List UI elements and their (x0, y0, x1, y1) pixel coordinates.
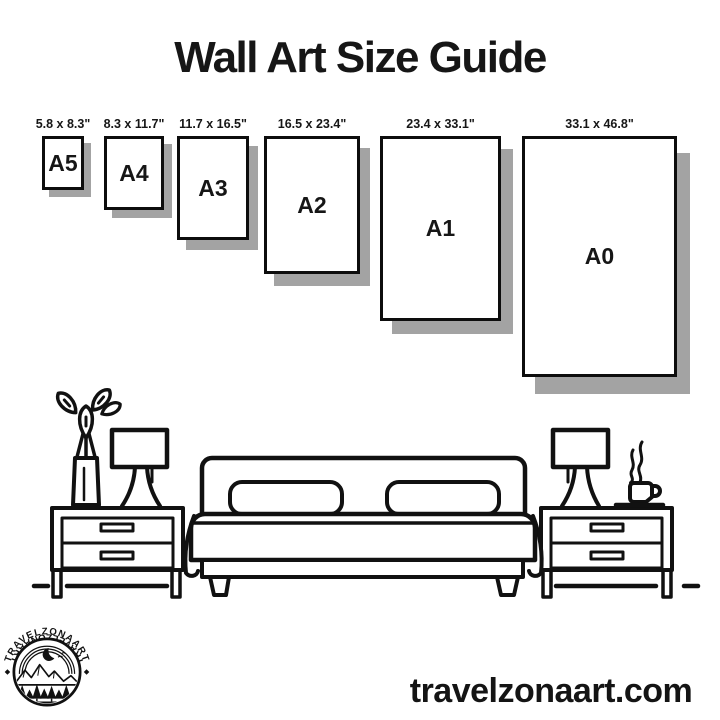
website-url: travelzonaart.com (401, 672, 701, 711)
table-lamp-left-icon (112, 430, 167, 506)
bedroom-illustration (0, 0, 720, 720)
bed-icon (185, 458, 541, 595)
steam (639, 442, 642, 482)
table-lamp-right-icon (553, 430, 608, 506)
steam (631, 450, 633, 481)
bed-leg-left (210, 577, 229, 595)
wall-art-size-guide-poster: Wall Art Size Guide 5.8 x 8.3" A5 8.3 x … (0, 0, 720, 720)
diamond-separator (5, 669, 11, 675)
pillow-right (387, 482, 499, 514)
pillow-left (230, 482, 342, 514)
nightstand-left-icon (52, 508, 183, 597)
nightstand-right-icon (541, 508, 672, 597)
bed-leg-right (497, 577, 518, 595)
blanket (191, 514, 535, 560)
diamond-separator (84, 669, 90, 675)
vase (73, 458, 99, 505)
coffee-cup-icon (616, 442, 663, 505)
brand-logo-badge: TRAVELZONAART TRAVELZONAART (1, 626, 93, 718)
water-icon (18, 701, 77, 713)
